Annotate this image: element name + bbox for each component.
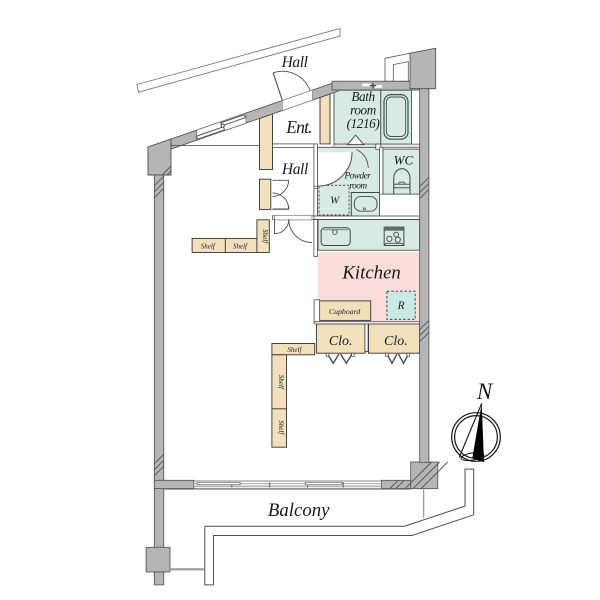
svg-text:Shelf: Shelf [201, 242, 216, 250]
svg-text:Ent.: Ent. [285, 117, 311, 137]
svg-text:R: R [397, 300, 405, 312]
svg-text:(1216): (1216) [347, 116, 380, 131]
svg-text:Shelf: Shelf [261, 229, 269, 244]
svg-text:Cupboard: Cupboard [329, 307, 360, 316]
svg-text:Clo.: Clo. [384, 334, 408, 349]
svg-text:W: W [330, 195, 340, 207]
svg-text:room: room [349, 182, 367, 192]
svg-text:Shelf: Shelf [277, 375, 285, 390]
svg-text:Powder: Powder [343, 172, 371, 182]
svg-text:Hall: Hall [281, 54, 308, 71]
svg-text:N: N [476, 379, 494, 404]
svg-text:Shelf: Shelf [287, 346, 302, 354]
svg-text:Shelf: Shelf [277, 420, 285, 435]
svg-text:Hall: Hall [281, 161, 308, 178]
svg-text:Clo.: Clo. [329, 334, 353, 349]
svg-text:Shelf: Shelf [233, 242, 248, 250]
svg-text:Kitchen: Kitchen [341, 263, 400, 284]
svg-text:WC: WC [394, 153, 414, 168]
svg-text:Balcony: Balcony [268, 500, 330, 521]
